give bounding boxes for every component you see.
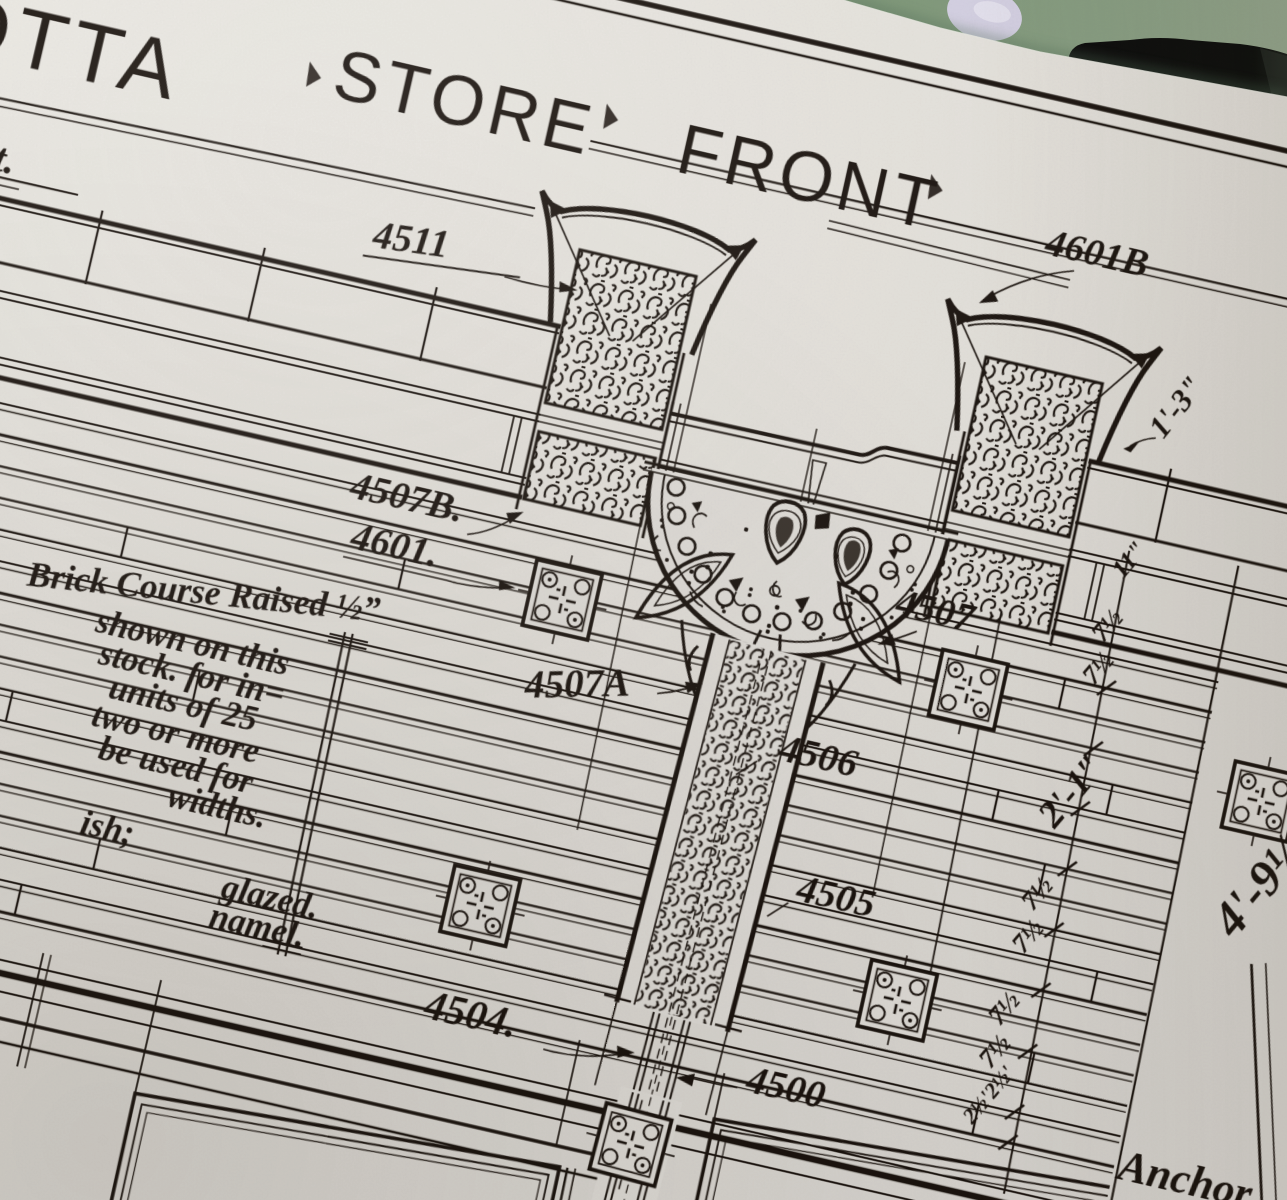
- svg-text:FRONT: FRONT: [670, 109, 947, 245]
- svg-text:2½'2½': 2½'2½': [957, 1061, 1019, 1129]
- svg-text:4504.: 4504.: [420, 981, 522, 1047]
- svg-text:4507A: 4507A: [523, 661, 630, 707]
- svg-text:OTTA: OTTA: [0, 0, 193, 118]
- svg-text:4505: 4505: [792, 866, 879, 927]
- svg-text:Anchor: Anchor: [1111, 1141, 1256, 1200]
- svg-text:11": 11": [1106, 536, 1152, 584]
- svg-text:t.: t.: [0, 135, 21, 184]
- svg-text:2'-1″: 2'-1″: [1029, 746, 1113, 836]
- svg-text:7½: 7½: [1015, 871, 1059, 916]
- svg-text:STORE: STORE: [327, 35, 603, 171]
- svg-text:Brick Course Raised ½”: Brick Course Raised ½”: [24, 554, 382, 630]
- svg-text:1'-3": 1'-3": [1141, 369, 1210, 444]
- svg-text:ish;: ish;: [77, 804, 138, 853]
